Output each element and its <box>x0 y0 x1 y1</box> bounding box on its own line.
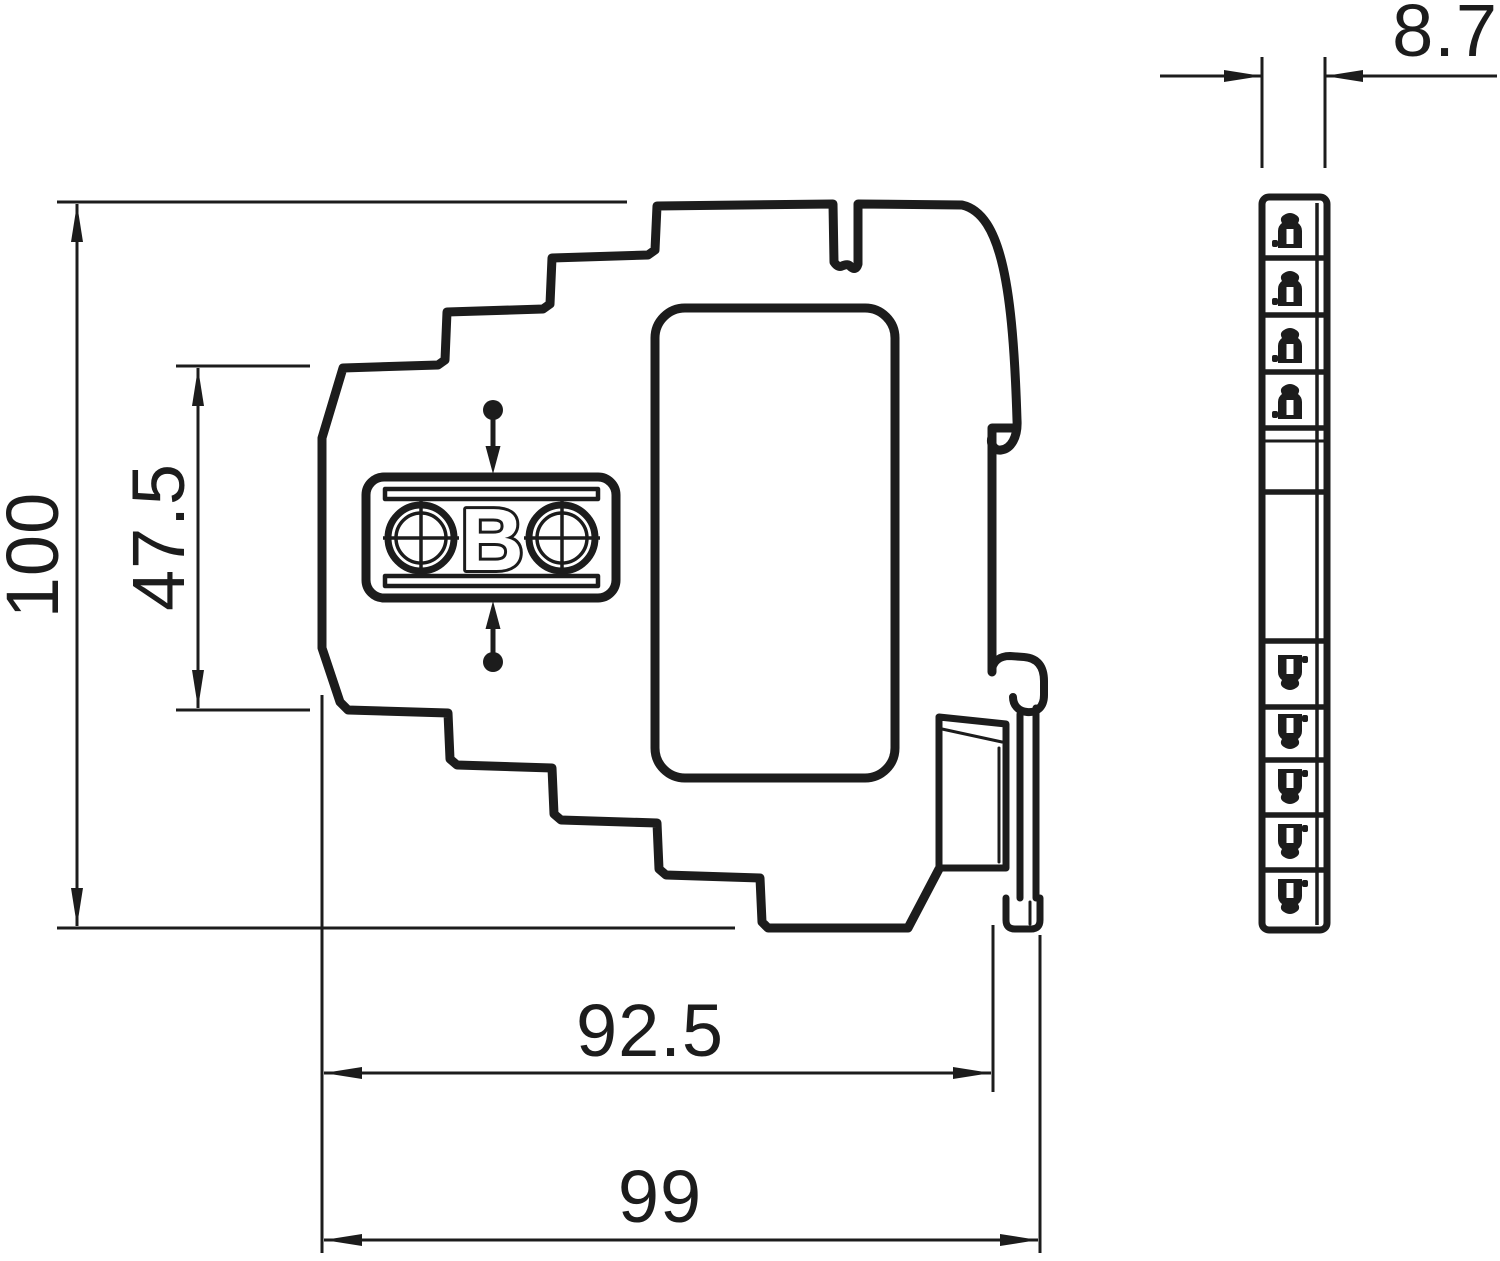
arrow-down-icon <box>483 400 503 474</box>
terminal-mark-icon <box>1278 769 1308 804</box>
din-rail-channel <box>1020 708 1036 898</box>
dim-100-label: 100 <box>0 492 74 618</box>
dimension-module-width: 8.7 <box>1160 0 1498 168</box>
terminal-mark-icon <box>1278 824 1308 859</box>
terminal-mark-icon <box>1272 328 1302 363</box>
label-window <box>655 308 895 778</box>
housing-right-edge <box>992 428 1016 672</box>
din-clip-inner-diagonal <box>942 729 1002 742</box>
dim-8-7-label: 8.7 <box>1392 0 1498 72</box>
dim-92-5-label: 92.5 <box>576 989 724 1072</box>
obo-logo-letter: B <box>460 490 524 589</box>
din-rail-foot <box>1006 898 1040 929</box>
technical-drawing-page: B <box>0 0 1500 1261</box>
terminal-mark-icon <box>1278 879 1308 914</box>
dimension-total-depth: 99 <box>324 935 1040 1253</box>
terminal-mark-icon <box>1278 655 1308 690</box>
terminal-mark-icon <box>1272 384 1302 419</box>
front-view <box>1262 197 1327 930</box>
arrow-up-icon <box>483 601 503 672</box>
dim-99-label: 99 <box>618 1155 702 1238</box>
dimension-partial-height: 47.5 <box>117 366 310 710</box>
drawing-canvas: B <box>0 0 1500 1261</box>
screw-terminal-left-icon <box>383 500 459 576</box>
obo-logo: B <box>366 477 616 598</box>
terminal-marks <box>1272 213 1308 914</box>
screw-terminal-right-icon <box>524 500 600 576</box>
terminal-mark-icon <box>1272 271 1302 306</box>
din-rail-top-claw <box>992 656 1044 712</box>
terminal-mark-icon <box>1272 213 1302 248</box>
terminal-mark-icon <box>1278 714 1308 749</box>
dim-47-5-label: 47.5 <box>117 463 200 611</box>
